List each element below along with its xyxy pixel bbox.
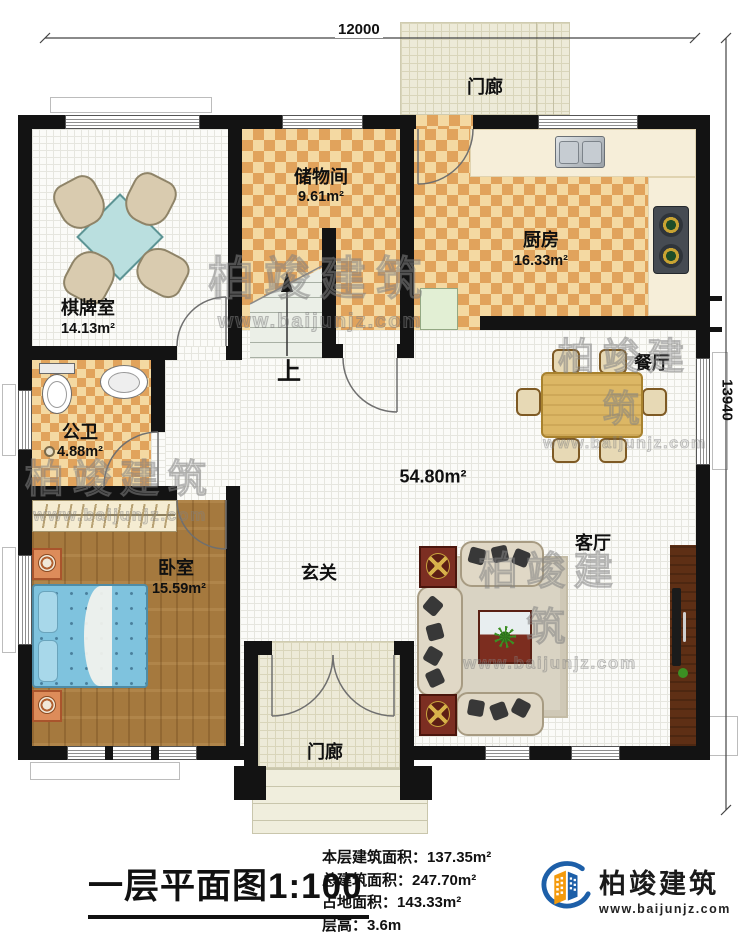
room-label-bedroom: 卧室 [158,554,194,580]
room-label-dining: 餐厅 [634,349,670,375]
stairs-up-label: 上 [277,352,301,387]
room-label-porch-top: 门廊 [467,73,503,99]
room-label-bathroom: 公卫 [62,418,98,444]
room-label-foyer: 玄关 [301,559,337,585]
dimension-height: 13940 [719,376,736,424]
stat-floor-area: 本层建筑面积：137.35m² [322,847,491,870]
annotations-overlay [0,0,750,933]
stat-total-area: 总建筑面积：247.70m² [322,870,491,893]
room-label-game-room: 棋牌室 [61,294,115,320]
room-area-storage: 9.61m² [298,189,344,205]
dimension-width: 12000 [335,21,383,38]
room-area-kitchen: 16.33m² [514,253,568,269]
room-label-living: 客厅 [575,529,611,555]
room-label-porch-bottom: 门廊 [307,738,343,764]
stat-land-area: 占地面积：143.33m² [322,892,491,915]
plan-title-text: 一层平面图 [88,867,268,906]
room-area-game-room: 14.13m² [61,321,115,337]
room-area-bathroom: 4.88m² [57,444,103,460]
brand-name: 柏竣建筑 [599,862,731,901]
brand-text: 柏竣建筑 www.baijunjz.com [599,862,731,916]
stat-floor-height: 层高：3.6m [322,915,491,933]
floor-plan: 门廊 储物间 9.61m² 厨房 16.33m² 棋牌室 14.13m² 餐厅 … [0,0,750,933]
room-label-storage: 储物间 [294,163,348,189]
brand-logo-icon [534,860,592,918]
room-area-bedroom: 15.59m² [152,581,206,597]
brand-logo: 柏竣建筑 www.baijunjz.com [534,860,731,918]
plan-stats: 本层建筑面积：137.35m² 总建筑面积：247.70m² 占地面积：143.… [322,847,491,933]
brand-url: www.baijunjz.com [599,902,731,916]
room-label-kitchen: 厨房 [523,226,559,252]
hall-area-label: 54.80m² [399,467,466,488]
